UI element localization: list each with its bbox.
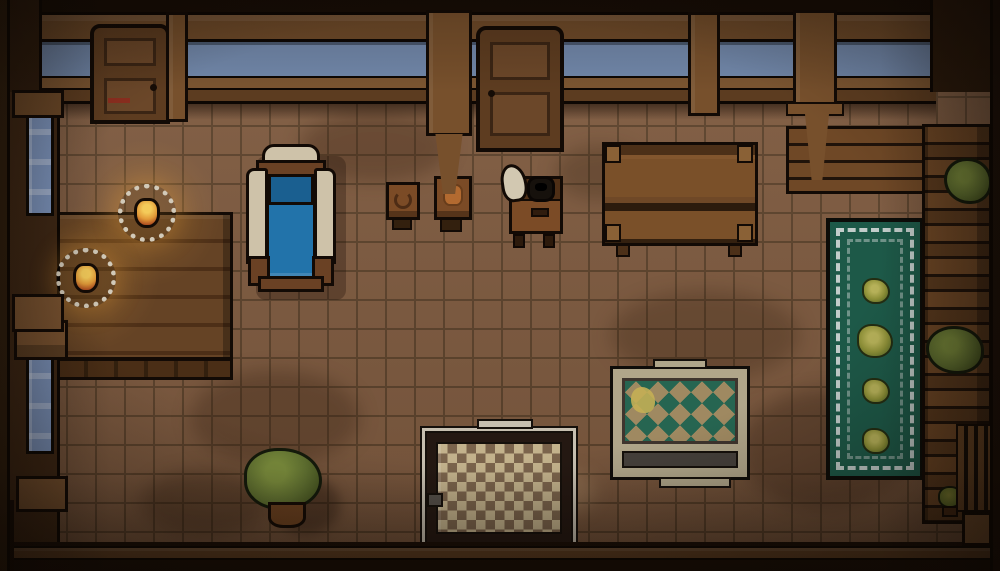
plant-pot-base [268,502,306,528]
door-panel [490,92,550,136]
flame-icon [134,198,160,228]
candle-on-plate[interactable] [118,184,176,242]
stove[interactable] [501,160,565,252]
shelf-bush [944,158,992,204]
stove-leg [543,234,555,248]
wall-beam [6,546,994,560]
armchair[interactable] [246,144,338,294]
potted-plant[interactable] [244,448,330,532]
clay-pot [394,191,412,209]
shelf-bush [926,326,984,374]
wall-bracket [12,90,64,118]
table-leg [728,244,742,257]
side-table-leg [392,218,412,230]
wood-railing [956,424,992,512]
rug-plant-motif [862,278,890,304]
wall-post [688,12,720,116]
window-upper [26,110,54,216]
wall-post [793,10,837,106]
green-runner-rug [826,218,924,480]
rug-checker-center [436,442,562,534]
stove-door [531,208,549,217]
rug-plant-motif [862,428,890,454]
plant-bush [244,448,322,510]
room-border [990,0,1000,571]
rug-corner-piece [427,493,443,507]
table-corner [605,145,621,163]
rug-diamond-motif [631,387,655,413]
flame-icon [73,263,99,293]
diamond-pattern-rug [610,366,750,480]
door-center[interactable] [476,26,564,152]
armchair-armrest [246,168,268,264]
armchair-seat [266,202,316,284]
wall-bracket [12,294,64,332]
side-table-leg [440,218,462,232]
room-border [0,0,10,571]
shelf-step [962,512,992,546]
checkered-rug [422,428,576,548]
door-left[interactable] [90,24,170,124]
door-knob-icon [488,90,495,97]
side-table[interactable] [386,182,420,220]
rug-plant-motif [857,324,893,358]
table-corner [605,224,621,242]
rug-plant-motif [862,378,890,404]
stove-leg [513,234,525,248]
rug-tab [659,477,731,488]
candle-on-plate[interactable] [56,248,116,308]
dining-table-edge[interactable] [55,358,233,380]
flour-sack[interactable] [498,162,529,203]
wall-bracket [786,102,844,116]
table-corner [737,145,753,163]
door-knob-icon [150,84,157,91]
game-scene [0,0,1000,571]
door-latch [108,98,130,103]
armchair-armrest [314,168,336,264]
rug-tab [477,419,533,429]
rug-tab [653,359,707,369]
door-panel [104,38,156,66]
large-wooden-table[interactable] [602,142,758,258]
table-top [602,142,758,246]
table-corner [737,224,753,242]
table-leg [616,244,630,257]
rug-diamond-band [622,451,738,468]
door-panel [104,78,156,114]
window-lower [26,354,54,454]
wall-post [426,10,472,136]
door-panel [490,42,550,80]
armchair-frame [258,276,324,292]
cooking-pot[interactable] [527,176,555,202]
wall-post [166,12,188,122]
wall-bracket [16,476,68,512]
